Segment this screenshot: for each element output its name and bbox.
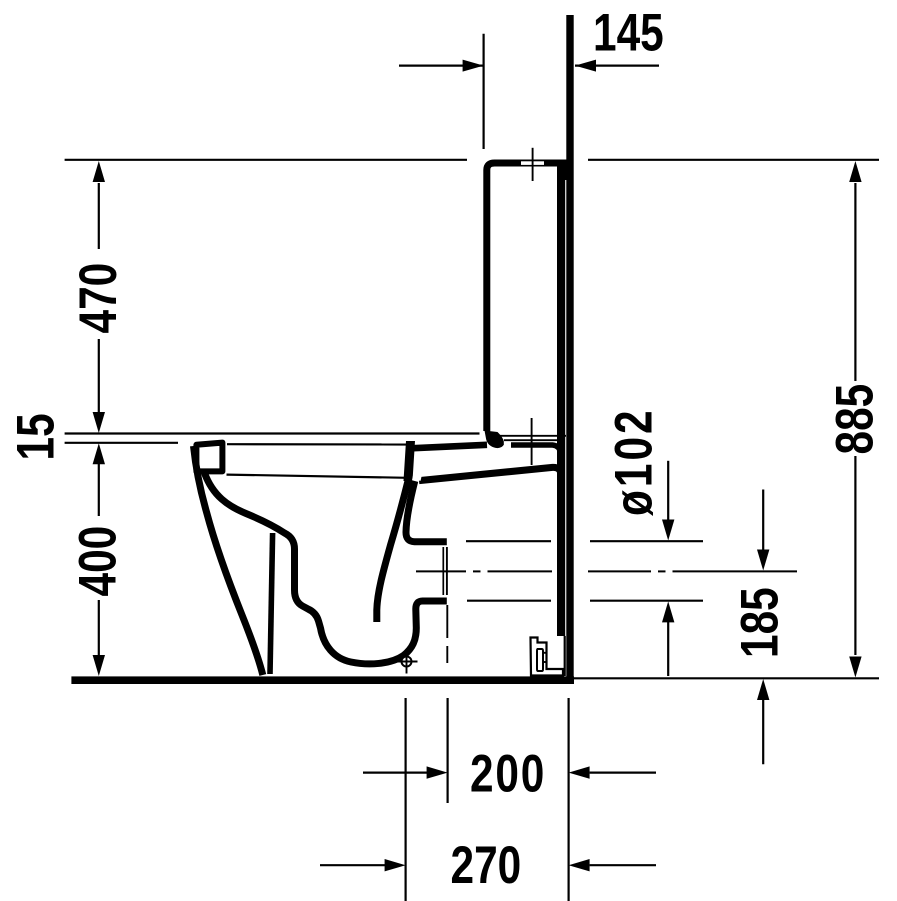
svg-text:885: 885: [826, 384, 885, 455]
svg-text:200: 200: [470, 745, 544, 804]
svg-text:185: 185: [731, 587, 790, 658]
svg-text:470: 470: [70, 263, 129, 334]
svg-text:15: 15: [7, 413, 66, 460]
svg-text:400: 400: [69, 526, 128, 597]
svg-text:145: 145: [593, 4, 664, 63]
svg-text:270: 270: [451, 837, 522, 896]
